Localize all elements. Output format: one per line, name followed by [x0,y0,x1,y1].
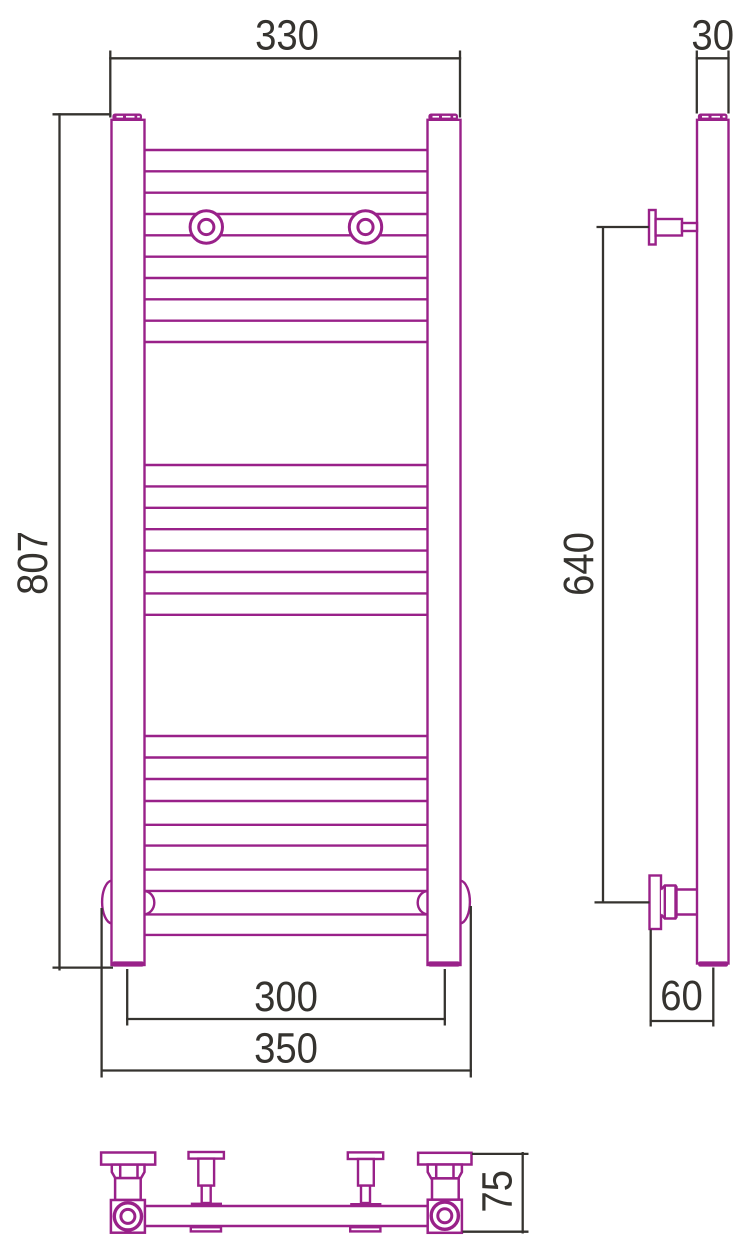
svg-text:300: 300 [254,972,318,1021]
svg-text:640: 640 [554,532,603,596]
svg-text:807: 807 [8,531,57,595]
svg-text:75: 75 [473,1170,522,1213]
svg-text:30: 30 [691,10,734,59]
svg-text:60: 60 [660,971,703,1020]
svg-text:330: 330 [255,10,319,59]
svg-text:350: 350 [254,1023,318,1072]
